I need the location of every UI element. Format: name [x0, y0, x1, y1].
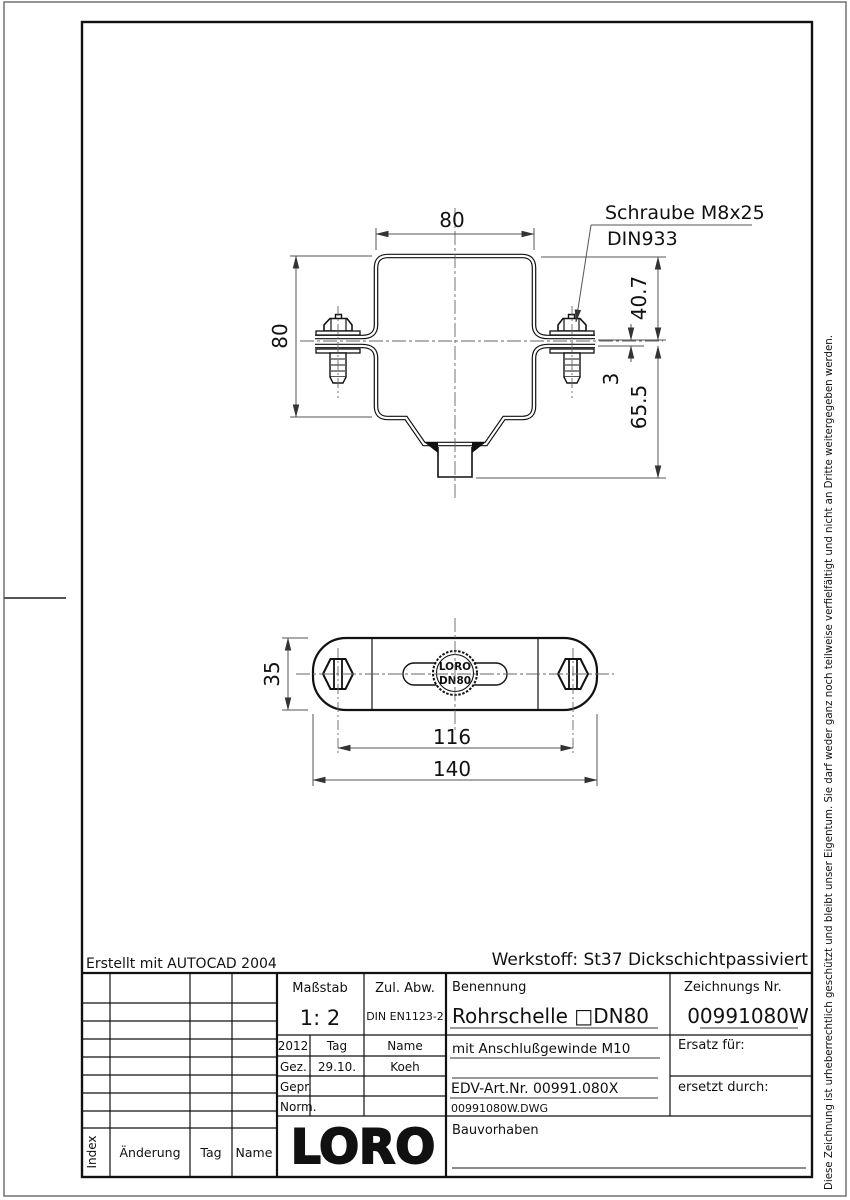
scale-value: 1: 2 [300, 1006, 340, 1030]
scale-label: Maßstab [292, 981, 347, 996]
cad-drawing-canvas: 80 80 40.7 3 65.5 Schraube M8x25 DIN9 [0, 0, 850, 1200]
subtitle-text: mit Anschlußgewinde M10 [452, 1041, 630, 1057]
weld-mark-left [424, 442, 438, 453]
dim-label-140: 140 [433, 757, 471, 781]
bauvorhaben-label: Bauvorhaben [452, 1123, 539, 1138]
approval-row-role: Gez. [280, 1060, 307, 1074]
rev-name-label: Name [236, 1145, 273, 1160]
approval-row-role: Norm. [280, 1100, 317, 1114]
zeichnungs-nr-label: Zeichnungs Nr. [684, 980, 782, 995]
dim-label-left-80: 80 [268, 323, 292, 348]
approval-row-role: Gepr. [280, 1080, 312, 1094]
tolerance-value: DIN EN1123-2 [366, 1010, 444, 1023]
dim-label-116: 116 [433, 725, 471, 749]
bolt-front-left [316, 306, 360, 398]
plan-view: LORO DN80 35 116 140 [260, 618, 614, 786]
rev-index-label: Index [85, 1135, 99, 1168]
dim-label-35: 35 [260, 661, 284, 686]
copyright-note: Diese Zeichnung ist urheberrechtlich ges… [824, 335, 835, 1190]
approval-col-tag: Tag [326, 1039, 347, 1053]
zeichnungs-nr-value: 00991080W [687, 1004, 809, 1028]
approval-row-date: 29.10. [318, 1060, 356, 1074]
dim-label-65-5: 65.5 [627, 385, 651, 430]
leader-text-line1: Schraube M8x25 [605, 202, 765, 224]
ersetzt-durch-label: ersetzt durch: [678, 1080, 769, 1095]
dwg-filename: 00991080W.DWG [451, 1102, 548, 1115]
rev-tag-label: Tag [199, 1145, 221, 1160]
approval-col-name: Name [387, 1039, 422, 1053]
leader-text-line2: DIN933 [607, 228, 678, 250]
edv-art-nr: EDV-Art.Nr. 00991.080X [451, 1081, 619, 1097]
created-with-note: Erstellt mit AUTOCAD 2004 [86, 956, 277, 972]
loro-logo: LORO [291, 1120, 435, 1175]
drawing-sheet: 80 80 40.7 3 65.5 Schraube M8x25 DIN9 [0, 0, 850, 1200]
weld-mark-right [472, 442, 486, 453]
rev-change-label: Änderung [119, 1145, 180, 1160]
bolt-front-right [550, 306, 594, 398]
dim-label-3: 3 [599, 373, 623, 386]
ersatz-fuer-label: Ersatz für: [678, 1038, 745, 1053]
approval-row-by: Koeh [390, 1060, 420, 1074]
title-block: Maßstab 1: 2 Zul. Abw. DIN EN1123-2 2012… [82, 973, 812, 1177]
dim-label-top-80: 80 [439, 208, 464, 232]
benennung-label: Benennung [452, 980, 526, 995]
front-view: 80 80 40.7 3 65.5 Schraube M8x25 DIN9 [268, 202, 765, 500]
tolerance-label: Zul. Abw. [375, 981, 435, 996]
material-note: Werkstoff: St37 Dickschichtpassiviert [492, 950, 809, 970]
approval-year: 2012 [278, 1039, 309, 1053]
benennung-value: Rohrschelle □DN80 [452, 1004, 649, 1028]
dim-label-40-7: 40.7 [627, 276, 651, 321]
